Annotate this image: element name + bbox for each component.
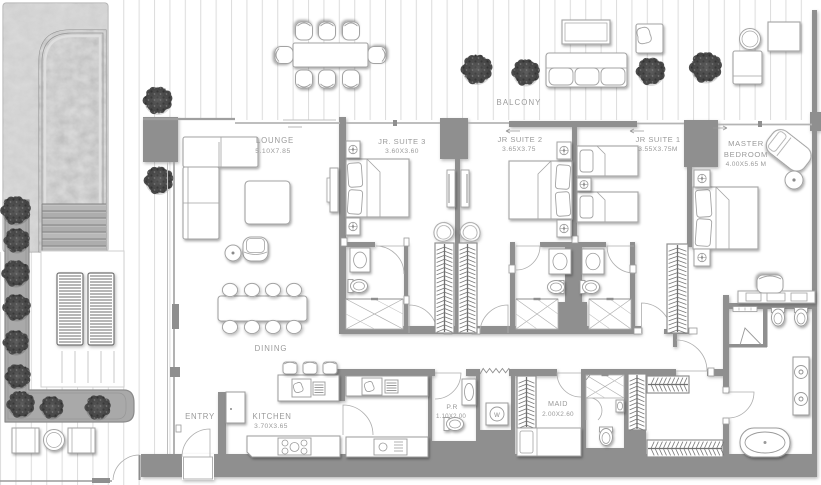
svg-text:JR SUITE 2: JR SUITE 2 <box>497 135 542 144</box>
svg-text:MASTER: MASTER <box>728 139 764 148</box>
svg-text:LOUNGE: LOUNGE <box>256 136 294 145</box>
svg-text:3.65X3.75: 3.65X3.75 <box>502 146 536 153</box>
svg-text:JR. SUITE 3: JR. SUITE 3 <box>378 137 426 146</box>
svg-text:3.55X3.75M: 3.55X3.75M <box>638 146 678 153</box>
svg-text:MAID: MAID <box>548 399 568 408</box>
svg-text:BEDROOM: BEDROOM <box>724 150 768 159</box>
svg-text:3.70X3.65: 3.70X3.65 <box>254 423 288 430</box>
svg-text:P.R: P.R <box>446 404 457 411</box>
svg-text:BALCONY: BALCONY <box>497 98 542 107</box>
svg-text:W: W <box>494 413 500 419</box>
svg-text:1.10X2.00: 1.10X2.00 <box>436 413 466 420</box>
svg-text:2.00X2.60: 2.00X2.60 <box>542 411 574 418</box>
svg-text:KITCHEN: KITCHEN <box>252 412 291 421</box>
svg-text:DINING: DINING <box>255 344 288 353</box>
svg-text:5.10X7.85: 5.10X7.85 <box>255 148 291 155</box>
svg-text:ENTRY: ENTRY <box>185 412 215 421</box>
svg-text:4.00X5.65 M: 4.00X5.65 M <box>726 161 767 168</box>
svg-text:JR SUITE 1: JR SUITE 1 <box>635 135 680 144</box>
svg-text:3.60X3.60: 3.60X3.60 <box>385 148 419 155</box>
